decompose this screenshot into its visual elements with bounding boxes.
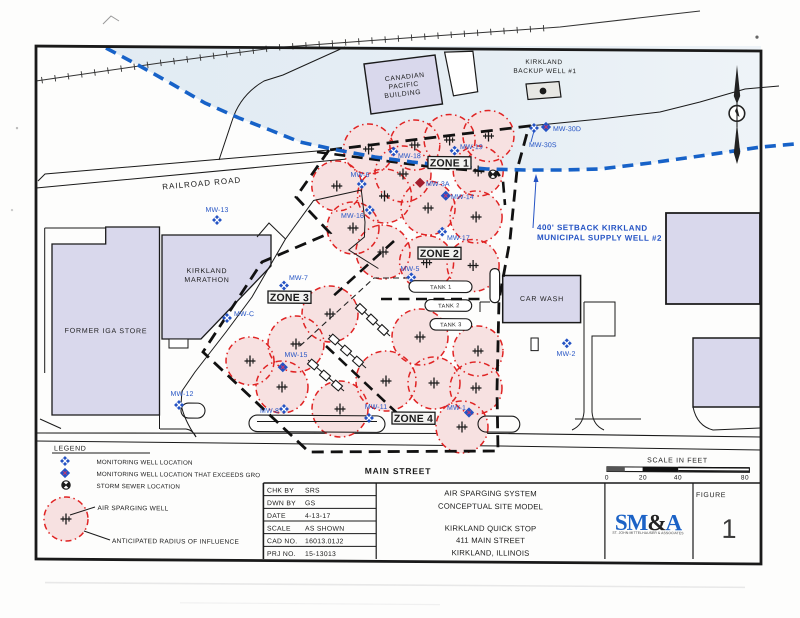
svg-text:MW-3A: MW-3A (426, 181, 450, 188)
svg-text:TANK 1: TANK 1 (430, 285, 452, 292)
svg-text:16013.01J2: 16013.01J2 (305, 538, 344, 545)
svg-text:MW-18: MW-18 (398, 153, 421, 160)
svg-text:MW-14: MW-14 (451, 194, 474, 201)
svg-text:FORMER IGA STORE: FORMER IGA STORE (65, 328, 148, 336)
svg-text:MW-16: MW-16 (341, 213, 364, 220)
svg-text:AIR SPARGING SYSTEM: AIR SPARGING SYSTEM (444, 489, 537, 499)
svg-text:TANK 3: TANK 3 (440, 322, 462, 329)
svg-text:CAR WASH: CAR WASH (520, 296, 564, 303)
svg-text:ZONE 2: ZONE 2 (420, 248, 459, 260)
svg-text:LEGEND: LEGEND (54, 445, 86, 452)
svg-text:MW-11: MW-11 (365, 404, 387, 411)
svg-text:MW-30D: MW-30D (553, 126, 581, 133)
svg-text:20: 20 (639, 474, 647, 481)
svg-text:SCALE: SCALE (267, 526, 291, 533)
svg-text:MONITORING WELL LOCATION TH: MONITORING WELL LOCATION THAT EXCEEDS GR… (97, 471, 261, 479)
svg-text:ZONE 4: ZONE 4 (394, 413, 433, 425)
svg-text:BACKUP WELL #1: BACKUP WELL #1 (513, 68, 576, 75)
svg-text:STORM SEWER LOCATION: STORM SEWER LOCATION (97, 483, 181, 491)
svg-text:MW-7: MW-7 (289, 275, 308, 282)
svg-text:80: 80 (741, 474, 749, 481)
svg-text:MW-8: MW-8 (260, 408, 279, 415)
svg-text:DWN BY: DWN BY (267, 500, 296, 507)
svg-text:ST. JOHN-MITTELHAUSER & ASSOCI: ST. JOHN-MITTELHAUSER & ASSOCIATES (612, 531, 684, 535)
svg-text:MAIN STREET: MAIN STREET (365, 466, 431, 476)
svg-text:MUNICIPAL SUPPLY WELL #2: MUNICIPAL SUPPLY WELL #2 (537, 233, 662, 243)
svg-text:MW-6: MW-6 (351, 172, 370, 179)
svg-text:0: 0 (605, 474, 609, 481)
svg-text:CHK BY: CHK BY (267, 487, 294, 494)
svg-text:1: 1 (721, 514, 736, 544)
svg-text:400' SETBACK KIRKLAND: 400' SETBACK KIRKLAND (537, 223, 648, 233)
svg-text:MARATHON: MARATHON (184, 277, 229, 284)
svg-text:MW-2: MW-2 (557, 351, 576, 358)
svg-text:15-13013: 15-13013 (305, 551, 336, 558)
svg-text:MW-C: MW-C (234, 311, 254, 318)
svg-text:ZONE 1: ZONE 1 (430, 157, 469, 169)
svg-text:MW-13: MW-13 (206, 207, 229, 214)
svg-text:DATE: DATE (267, 513, 286, 520)
svg-text:4-13-17: 4-13-17 (305, 513, 331, 520)
svg-text:TANK 2: TANK 2 (438, 303, 460, 310)
svg-text:MW-17: MW-17 (447, 235, 470, 242)
svg-text:KIRKLAND: KIRKLAND (187, 268, 228, 275)
svg-text:AIR SPARGING WELL: AIR SPARGING WELL (98, 505, 169, 512)
svg-text:KIRKLAND: KIRKLAND (525, 59, 562, 66)
svg-text:40: 40 (674, 474, 682, 481)
svg-text:MW-12: MW-12 (171, 391, 194, 398)
svg-text:411 MAIN STREET: 411 MAIN STREET (456, 536, 525, 545)
svg-text:PRJ NO.: PRJ NO. (267, 551, 296, 558)
svg-text:KIRKLAND QUICK STOP: KIRKLAND QUICK STOP (445, 524, 537, 534)
svg-text:ZONE 3: ZONE 3 (270, 292, 309, 304)
svg-text:SRS: SRS (305, 488, 320, 495)
svg-text:MW-19: MW-19 (460, 144, 483, 151)
svg-text:KIRKLAND, ILLINOIS: KIRKLAND, ILLINOIS (452, 548, 530, 558)
svg-text:CAD NO.: CAD NO. (267, 538, 297, 545)
svg-text:SCALE IN FEET: SCALE IN FEET (647, 457, 708, 464)
svg-text:MW-1: MW-1 (447, 405, 466, 412)
svg-text:MONITORING WELL LOCATION: MONITORING WELL LOCATION (97, 459, 193, 467)
svg-text:MW-5: MW-5 (401, 266, 420, 273)
svg-text:MW-30S: MW-30S (529, 142, 557, 149)
svg-text:AS SHOWN: AS SHOWN (305, 526, 344, 533)
svg-text:MW-15: MW-15 (285, 352, 308, 359)
svg-text:CONCEPTUAL SITE MODEL: CONCEPTUAL SITE MODEL (438, 502, 544, 512)
svg-text:GS: GS (305, 500, 316, 507)
svg-text:FIGURE: FIGURE (696, 492, 726, 499)
svg-text:ANTICIPATED RADIUS OF INFLUENC: ANTICIPATED RADIUS OF INFLUENCE (112, 538, 240, 546)
